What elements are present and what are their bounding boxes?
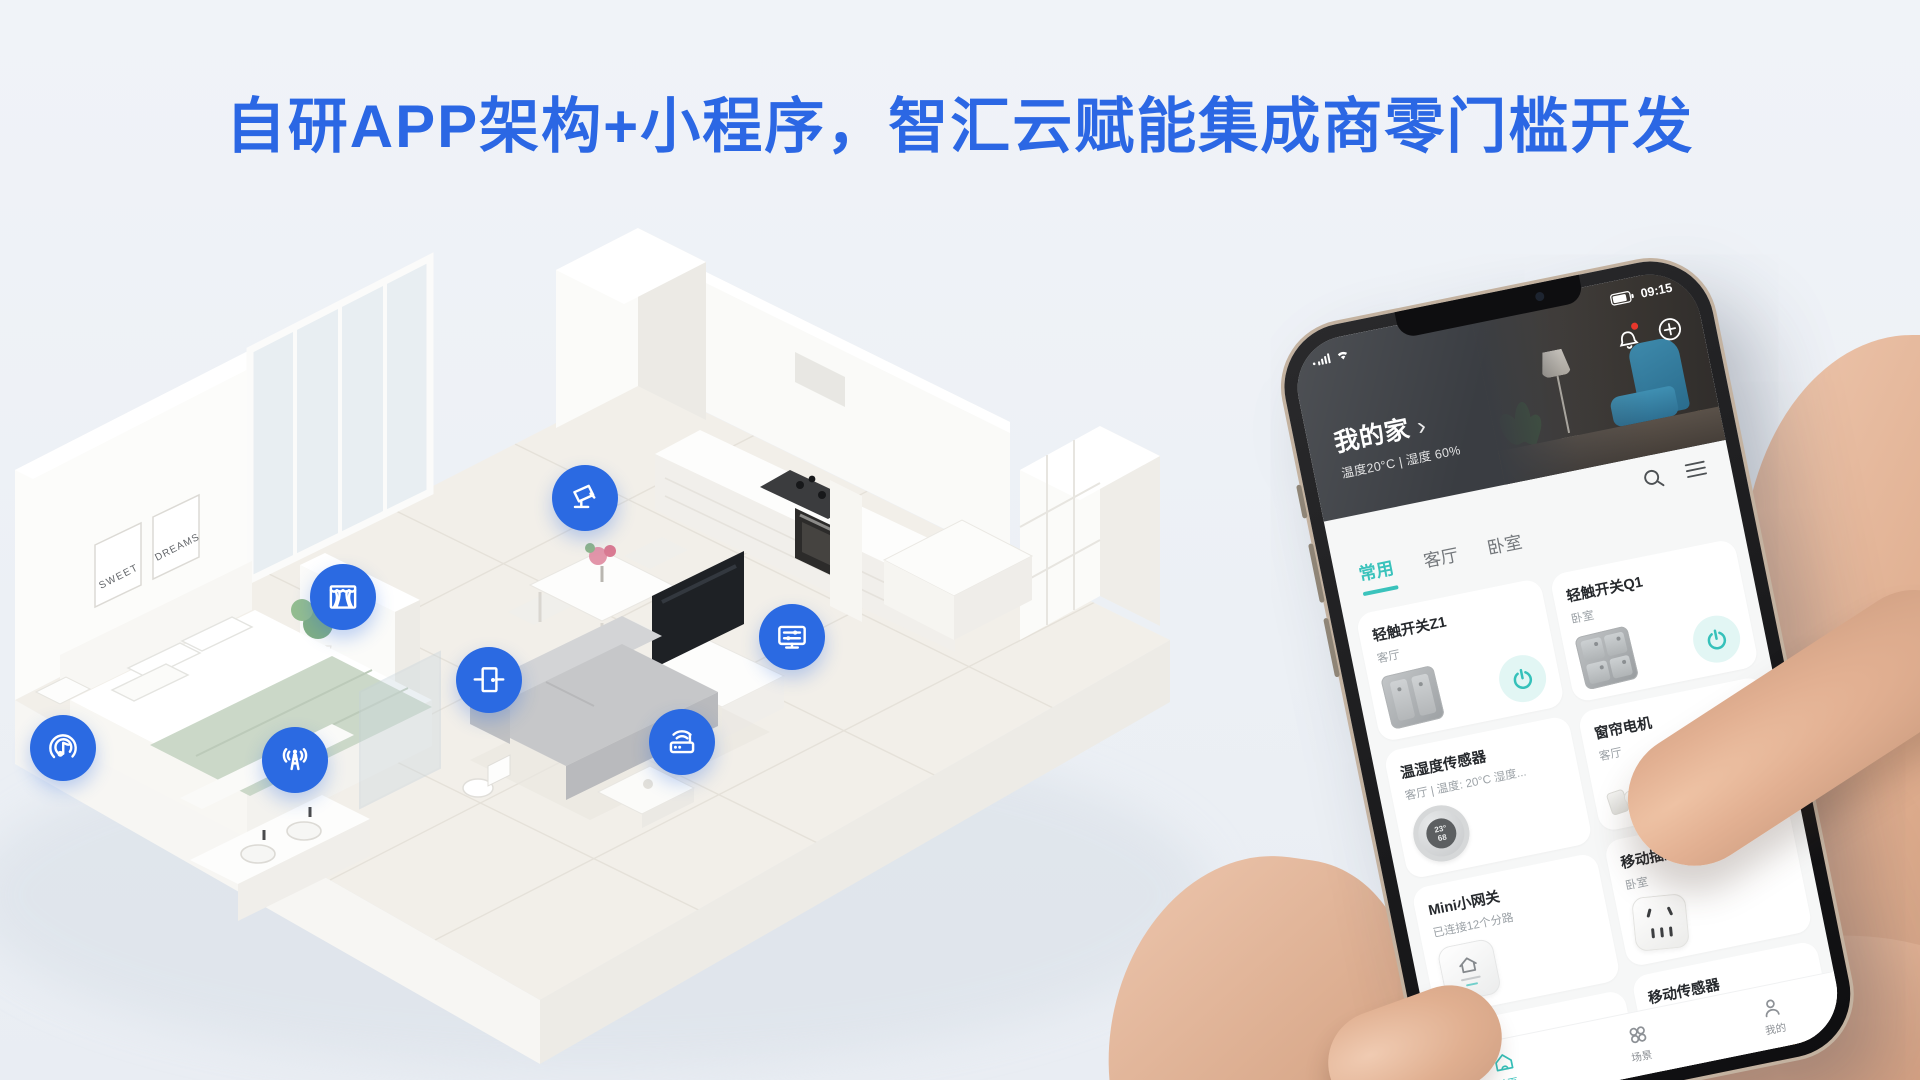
card-touch-switch-q1[interactable]: 轻触开关Q1 卧室 [1549, 538, 1759, 703]
banner-stage: 自研APP架构+小程序，智汇云赋能集成商零门槛开发 [0, 0, 1920, 1080]
card-temp-humidity-sensor[interactable]: 温湿度传感器 客厅 | 温度: 20°C 湿度... 23° 68 [1383, 715, 1593, 880]
battery-icon [1609, 289, 1636, 307]
door-lock-icon [456, 647, 522, 713]
tab-changyong[interactable]: 常用 [1357, 555, 1399, 596]
clock: 09:15 [1639, 281, 1673, 301]
socket-device-image [1631, 893, 1690, 952]
signal-wifi-icons [1310, 346, 1352, 367]
tab-woshi[interactable]: 卧室 [1485, 529, 1524, 560]
chevron-right-icon: › [1415, 412, 1429, 441]
scenes-icon [1624, 1021, 1651, 1048]
wifi-router-icon [649, 709, 715, 775]
cctv-camera-icon [552, 465, 618, 531]
music-player-icon [30, 715, 96, 781]
quad-switch-device-image [1574, 625, 1639, 690]
card-touch-switch-z1[interactable]: 轻触开关Z1 客厅 [1355, 578, 1565, 743]
switch-device-image [1380, 665, 1445, 730]
signal-antenna-icon [262, 727, 328, 793]
menu-icon[interactable] [1683, 458, 1708, 480]
add-device-icon[interactable] [1655, 314, 1684, 343]
smart-tv-icon [759, 604, 825, 670]
curtain-icon [310, 564, 376, 630]
power-button[interactable] [1689, 611, 1744, 666]
search-icon[interactable] [1641, 466, 1666, 491]
power-button[interactable] [1495, 651, 1550, 706]
profile-icon [1758, 994, 1785, 1021]
sensor-device-image: 23° 68 [1408, 800, 1474, 866]
page-title: 自研APP架构+小程序，智汇云赋能集成商零门槛开发 [0, 78, 1920, 165]
notification-bell-icon[interactable] [1613, 323, 1642, 352]
tab-keting[interactable]: 客厅 [1421, 542, 1460, 573]
